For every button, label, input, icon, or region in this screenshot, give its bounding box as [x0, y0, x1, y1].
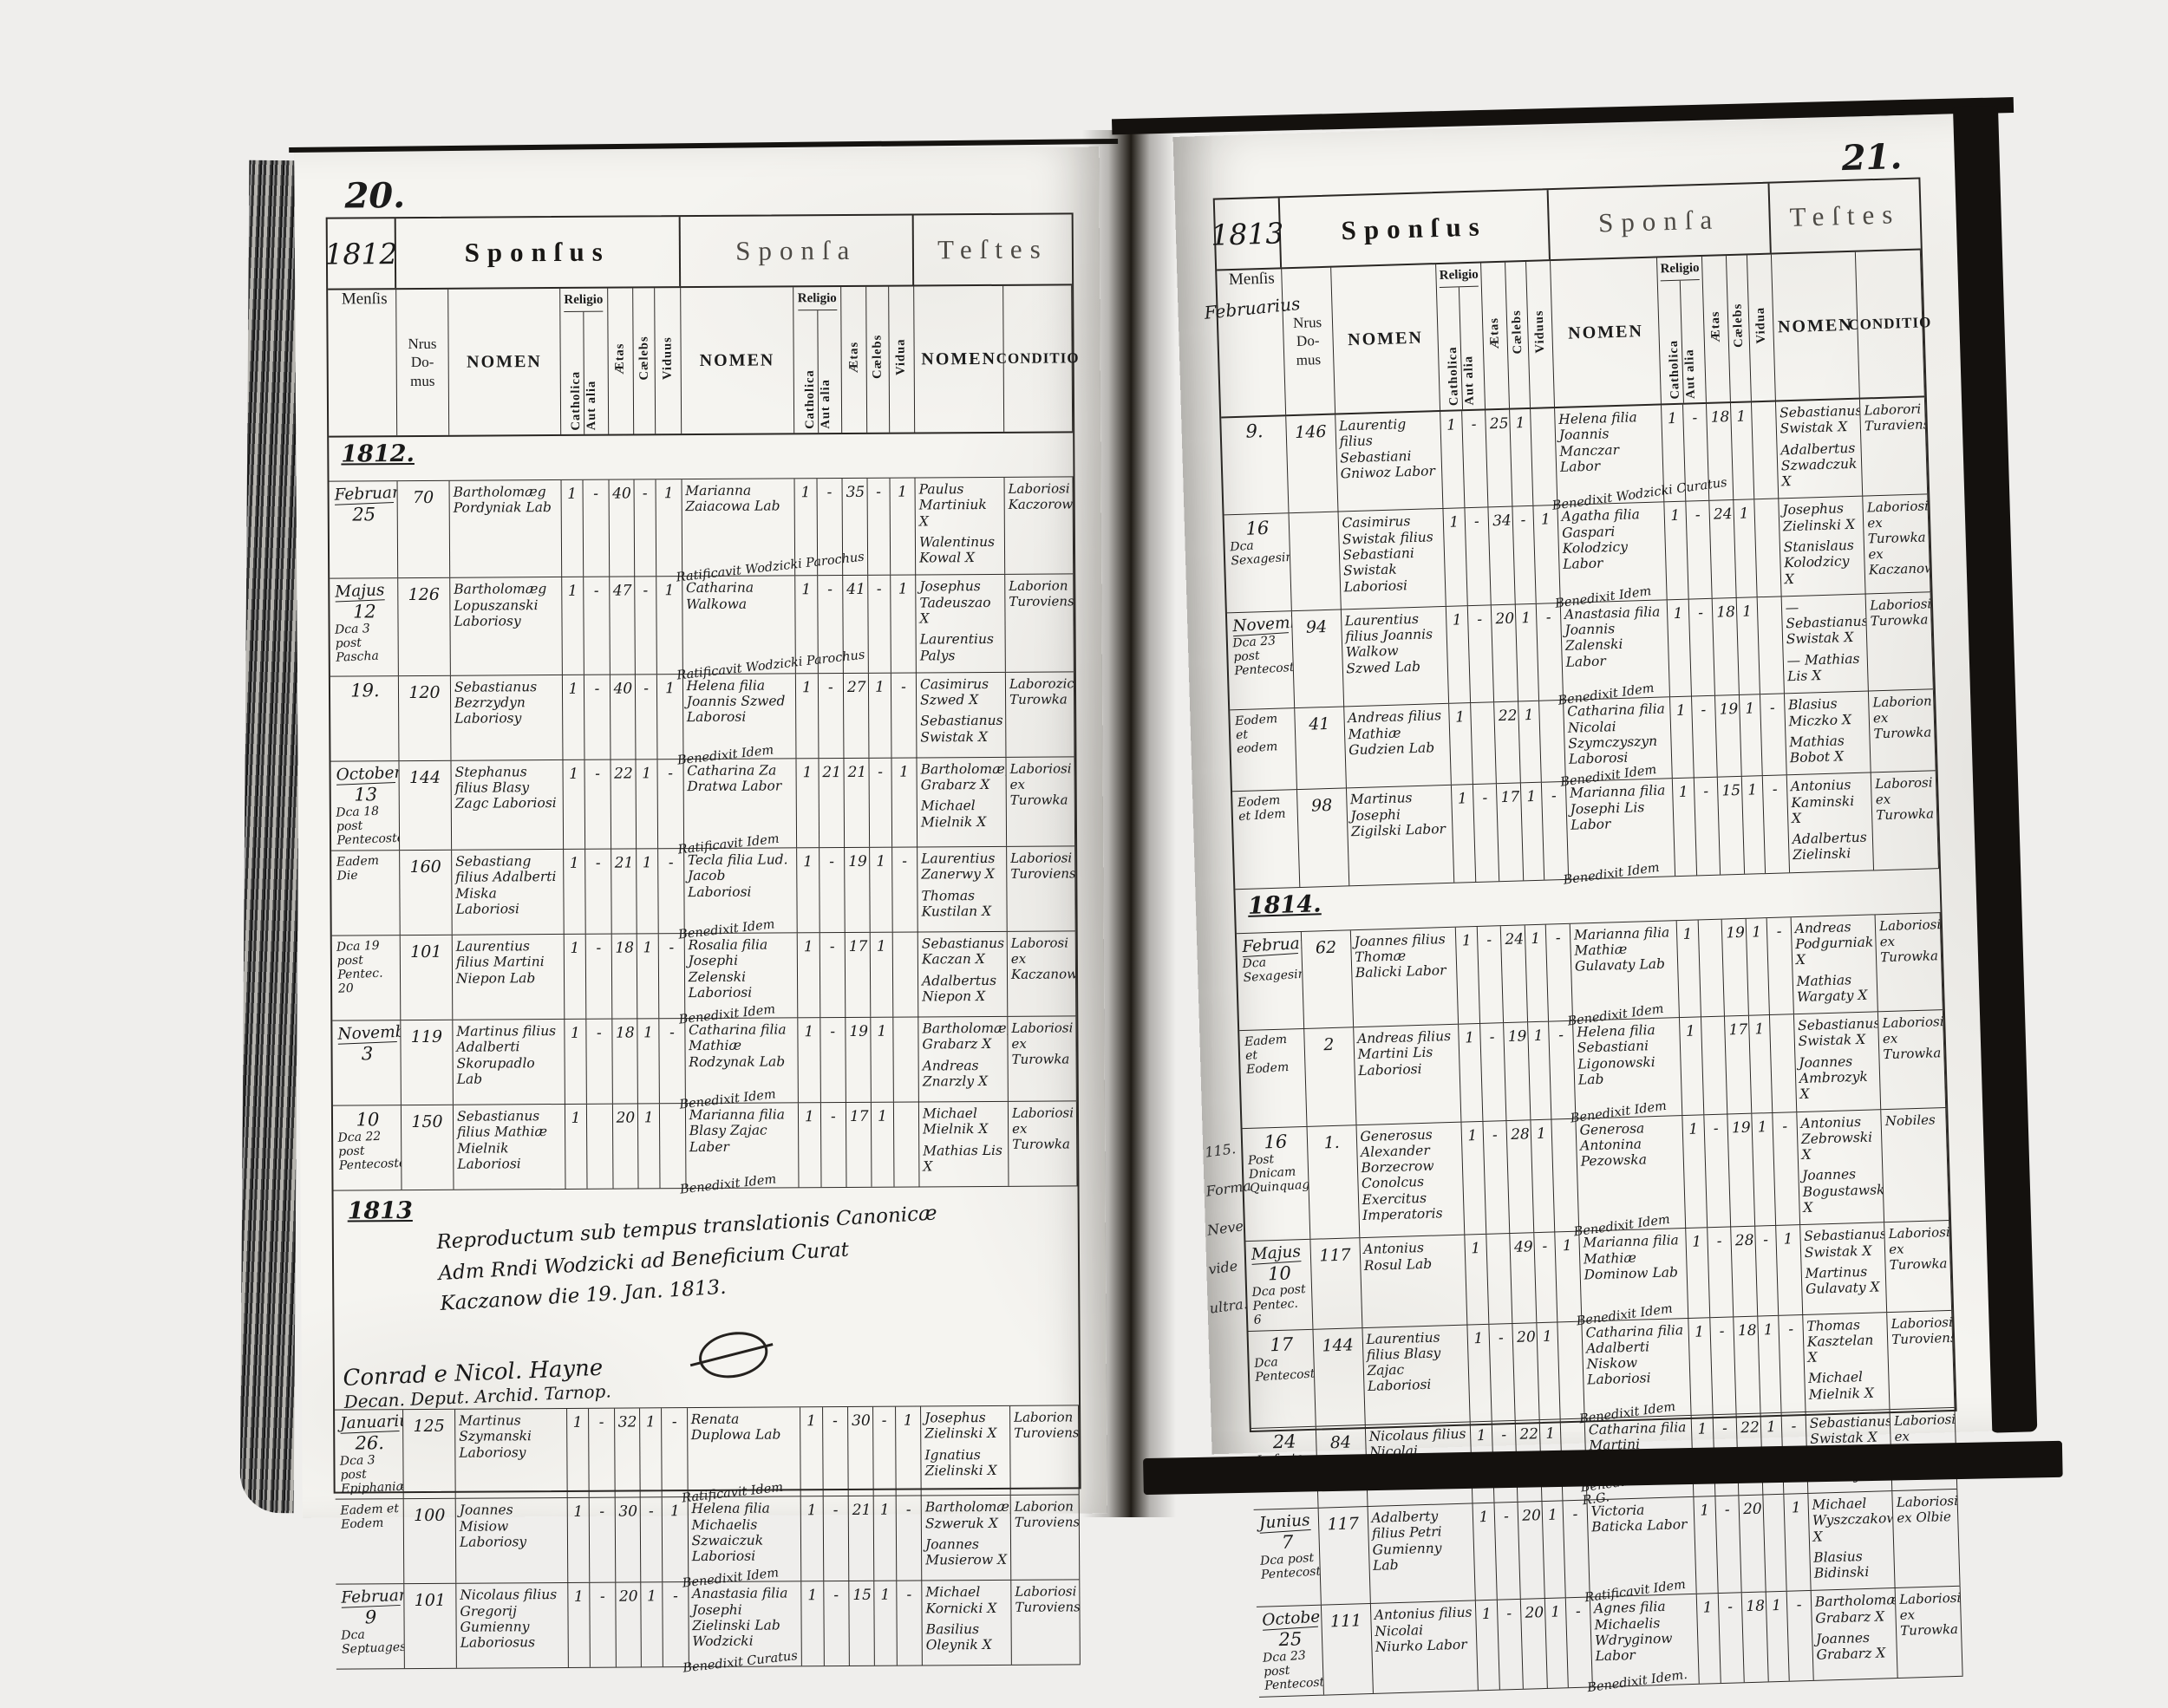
left-page: 20. 1812 Sponſus Sponſa Teſtes Menſis Nr…	[294, 147, 1107, 1518]
cell-sponsa-viduus: -	[897, 1496, 923, 1581]
religio-label: Religio	[1439, 264, 1479, 288]
register-entry-row: Februarius2570Bartholomæg Pordyniak Lab1…	[330, 477, 1074, 579]
date-detail: Eadem Die	[336, 853, 396, 883]
cell-sponsus-name: Laurentig filius Sebastiani Gniwoz Labor	[1335, 412, 1444, 512]
cell-testes: — Sebastianus Swistak X— Mathias Lis X	[1781, 594, 1869, 693]
cell-sponsus-aut-alia	[587, 1105, 613, 1189]
witness-name: Bartholomæg Szweruk X	[925, 1499, 1007, 1531]
cell-mensis: Junius7Dca post Pentecosten	[1254, 1509, 1322, 1607]
cell-sponsus-caelebs: 1	[1516, 604, 1540, 701]
date-detail: Eodem et Idem	[1237, 792, 1295, 824]
cell-mensis: 16Post Dnicam Quinquagesima	[1243, 1126, 1311, 1241]
cell-sponsus-aetas: 20	[1492, 604, 1518, 701]
cell-house-number: 2	[1304, 1027, 1356, 1125]
cell-sponsus-aetas: 30	[615, 1498, 641, 1582]
sponsus-religio-header: Religio Catholica Aut alia	[1436, 264, 1486, 410]
cell-sponsa-viduus: 1	[891, 758, 917, 846]
cell-sponsus-aut-alia: -	[1467, 605, 1494, 702]
witness-name: Michael Kornicki X	[925, 1584, 1007, 1616]
sponsus-viduus-header: Viduus	[656, 288, 682, 434]
date-detail: Dca Sexagesima	[1230, 538, 1287, 569]
register-entry-row: Eadem et Eodem100Joannes Misiow Laborios…	[336, 1496, 1081, 1585]
register-entry-row: November3119Martinus filius Adalberti Sk…	[332, 1016, 1077, 1105]
cell-sponsus-name: Martinus Szymanski Laboriosy	[455, 1409, 567, 1498]
witness-name: Sebastianus Swistak X	[1798, 1016, 1875, 1050]
year-box: 1813	[1215, 198, 1282, 269]
mensis-label: Menſis	[342, 290, 388, 309]
left-page-entries: 1812.Februarius2570Bartholomæg Pordyniak…	[329, 433, 1081, 1670]
cell-sponsus-aut-alia: -	[1473, 785, 1500, 882]
cell-sponsus-aetas: 32	[615, 1409, 641, 1497]
cell-sponsus-aetas: 19	[1504, 1022, 1531, 1119]
month-label: Februarius	[341, 1587, 401, 1608]
cell-sponsus-catholica: 1	[563, 675, 585, 759]
day-label: 7	[1259, 1531, 1315, 1554]
mensis-label: Menſis	[1229, 270, 1275, 290]
cell-testes: Casimirus Szwed XSebastianus Swistak X	[917, 673, 1007, 758]
cell-house-number: 125	[403, 1410, 456, 1499]
cell-sponsus-name: Martinus Josephi Zigilski Labor	[1347, 786, 1455, 885]
cell-testes: Sebastianus Swistak XAdalbertus Szwadczu…	[1776, 400, 1864, 499]
witness-name: Josephus Zielinski X	[924, 1410, 1006, 1442]
date-detail: Dca post Pentec. 6	[1251, 1282, 1309, 1327]
cell-testes: Michael Kornicki XBasilius Oleynik X	[922, 1581, 1012, 1666]
sponsus-caelebs-header: Cælebs	[633, 288, 656, 434]
aut-alia-label: Aut alia	[818, 380, 833, 430]
religio-label: Religio	[1660, 257, 1700, 281]
cell-sponsus-catholica: 1	[1456, 927, 1480, 1024]
witness-name: Andreas Znarzly X	[923, 1058, 1004, 1090]
cell-sponsus-catholica: 1	[1446, 606, 1471, 703]
day-label: 25	[335, 504, 394, 525]
cell-sponsus-viduus	[1558, 1321, 1585, 1418]
cell-mensis: Majus12Dca 3 post Pascha	[330, 579, 399, 676]
religio-label: Religio	[564, 289, 603, 312]
cell-testes: Thomas Kasztelan XMichael Mielnik X	[1803, 1313, 1890, 1411]
cell-conditio: Laborosi ex Kaczanowka	[1008, 931, 1077, 1015]
margin-note: Forma	[1205, 1178, 1247, 1200]
cell-sponsus-catholica: 1	[1468, 1324, 1492, 1421]
witness-name: Josephus Tadeuszao X	[919, 578, 1001, 626]
cell-sponsus-aetas: 20	[612, 1105, 638, 1189]
registrar-note-row: 1813Reproductum sub tempus translationis…	[334, 1186, 1080, 1410]
catholica-column: Catholica	[568, 312, 584, 434]
day-label: 9	[341, 1607, 400, 1628]
cell-sponsus-aetas: 40	[609, 479, 635, 577]
date-detail: Dca Pentecosten	[1254, 1353, 1311, 1384]
cell-sponsus-catholica: 1	[567, 1498, 590, 1582]
cell-conditio: Laboriosi ex Turowka	[1878, 1010, 1946, 1109]
cell-sponsa-viduus: -	[892, 848, 918, 932]
sponsa-caelebs-header: Cælebs	[866, 287, 890, 433]
cell-sponsus-aut-alia: -	[1489, 1323, 1516, 1420]
cell-house-number: 101	[404, 1584, 457, 1668]
cell-sponsus-aut-alia: -	[1477, 926, 1504, 1023]
margin-note: ultra.	[1209, 1295, 1251, 1317]
cell-mensis: FebruariusDca Sexagesima	[1237, 932, 1304, 1031]
cell-mensis: Februarius9Dca Septuagesima	[336, 1584, 405, 1668]
cell-house-number: 144	[1313, 1328, 1365, 1426]
date-detail: Dca 3 post Pascha	[335, 621, 395, 665]
catholica-column: Catholica	[802, 310, 819, 433]
cell-sponsus-viduus: -	[663, 1582, 689, 1666]
cell-sponsus-aetas: 22	[611, 759, 637, 848]
cell-conditio: Laboriosi ex Olbie	[1892, 1490, 1960, 1588]
cell-conditio: Nobiles	[1881, 1108, 1949, 1222]
aut-alia-label: Aut alia	[1462, 355, 1479, 406]
cell-sponsus-catholica: 1	[1444, 509, 1468, 606]
witness-name: Blasius Bidinski	[1813, 1548, 1890, 1581]
catholica-label: Catholica	[569, 371, 584, 431]
cell-sponsus-viduus: -	[1542, 782, 1569, 879]
date-detail: Dca 23 post Pentecosten	[1232, 633, 1290, 678]
cell-sponsus-caelebs: -	[636, 675, 658, 759]
month-label: Januarius	[340, 1412, 400, 1434]
cell-sponsus-aetas: 20	[1521, 1599, 1548, 1688]
cell-sponsus-catholica: 1	[1459, 1024, 1483, 1121]
cell-sponsus-aetas: 18	[611, 935, 637, 1019]
cell-sponsus-name: Laurentius filius Martini Niepon Lab	[453, 935, 565, 1020]
cell-sponsus-name: Andreas filius Martini Lis Laboriosi	[1354, 1025, 1462, 1125]
year-box: 1812	[328, 218, 396, 288]
register-entry-row: 16Post Dnicam Quinquagesima1.Generosus A…	[1243, 1108, 1950, 1242]
cell-conditio: Laboriosi ex Turowka	[1884, 1221, 1952, 1311]
catholica-label: Catholica	[1446, 347, 1462, 407]
aut-alia-column: Aut alia	[1681, 280, 1699, 402]
witness-name: Joannes Grabarz X	[1816, 1629, 1893, 1663]
cell-sponsus-name: Antonius filius Nicolai Niurko Labor	[1370, 1601, 1479, 1693]
cell-sponsus-name: Adalberty filius Petri Gumienny Lab	[1368, 1503, 1476, 1603]
cell-sponsa-viduus: -	[1760, 694, 1786, 776]
cell-sponsus-aetas: 28	[1507, 1120, 1534, 1233]
cell-house-number: 119	[401, 1020, 454, 1105]
cell-sponsus-catholica: 1	[565, 1105, 588, 1189]
witness-name: Bartholomæg Grabarz X	[921, 761, 1002, 793]
cell-sponsus-aut-alia: -	[584, 675, 611, 759]
cell-sponsus-name: Joannes Misiow Laboriosy	[456, 1498, 568, 1583]
left-table-section-band: 1812 Sponſus Sponſa Teſtes	[328, 214, 1072, 290]
cell-sponsus-caelebs: 1	[637, 849, 659, 933]
cell-mensis: November3	[332, 1020, 402, 1105]
cell-sponsus-aut-alia: -	[1465, 508, 1492, 605]
date-detail: Dca 18 post Pentecosten	[336, 804, 396, 848]
cell-testes: Josephus Tadeuszao XLaurentius Palys	[916, 575, 1006, 672]
cell-sponsus-catholica: 1	[565, 1020, 587, 1104]
cell-sponsus-caelebs: 1	[1525, 924, 1550, 1021]
cell-house-number: 146	[1286, 415, 1338, 513]
cell-mensis: Februarius25	[330, 481, 399, 578]
cell-testes: Bartholomæg Szweruk XJoannes Musierow X	[922, 1496, 1012, 1581]
cell-sponsus-viduus: -	[663, 1408, 689, 1496]
cell-conditio: Laborion Turoviensis	[1010, 1405, 1080, 1495]
cell-testes: Paulus Martiniuk XWalentinus Kowal X	[916, 478, 1006, 575]
cell-sponsus-viduus: -	[659, 934, 685, 1018]
month-label: October	[336, 764, 395, 786]
page-number-left: 20.	[344, 175, 405, 216]
cell-sponsus-viduus: -	[658, 759, 684, 848]
cell-sponsus-catholica: 1	[568, 1583, 591, 1667]
signature-block: Conrad e Nicol. HayneDecan. Deput. Archi…	[343, 1351, 717, 1413]
house-number-column-header: Nrus Do- mus	[396, 290, 449, 435]
cell-sponsus-viduus	[1552, 1118, 1579, 1231]
cell-mensis: October13Dca 18 post Pentecosten	[330, 761, 400, 851]
witness-name: Michael Mielnik X	[923, 1105, 1004, 1138]
sponsus-religio-header: Religio Catholica Aut alia	[560, 289, 609, 434]
conditio-header: CONDITIO	[1856, 250, 1925, 397]
conditio-header: CONDITIO	[1003, 285, 1073, 431]
date-detail: Dca post Pentecosten	[1260, 1551, 1317, 1582]
cell-sponsus-viduus	[1531, 408, 1557, 505]
cell-testes: Bartholomæg Grabarz XMichael Mielnik X	[917, 758, 1008, 847]
day-label: 12	[335, 602, 394, 623]
day-label: 16	[1248, 1131, 1303, 1153]
date-detail: Dca 22 post Pentecosten	[337, 1129, 398, 1173]
cell-sponsus-aetas: 49	[1511, 1233, 1538, 1322]
cell-mensis: Eadem et Eodem	[1239, 1029, 1307, 1128]
witness-name: — Sebastianus Swistak X	[1785, 597, 1863, 647]
right-page: 21. 115. Forma Neve vide ultra. 1813 Spo…	[1173, 114, 1993, 1454]
cell-sponsus-caelebs: 1	[638, 1104, 661, 1188]
cell-conditio: Laborion ex Turowka	[1869, 689, 1936, 772]
cell-house-number: 98	[1297, 789, 1349, 887]
register-scan-scene: 20. 1812 Sponſus Sponſa Teſtes Menſis Nr…	[0, 0, 2168, 1622]
witness-name: Laurentius Palys	[920, 631, 1002, 663]
cell-sponsus-name: Casimirus Swistak filius Sebastiani Swis…	[1338, 509, 1446, 609]
cell-sponsus-caelebs: 1	[1510, 409, 1534, 506]
cell-sponsus-viduus: 1	[663, 1497, 689, 1581]
cell-sponsus-aut-alia: -	[1483, 1121, 1510, 1234]
testes-nomen-header: NOMEN	[914, 286, 1004, 433]
cell-sponsus-aut-alia: -	[587, 1020, 613, 1104]
cell-mensis: Dca 19 post Pentec. 20	[332, 935, 402, 1020]
house-number-column-header: Nrus Do- mus	[1282, 268, 1335, 415]
cell-sponsus-aut-alia: -	[591, 1583, 617, 1667]
cell-mensis: Majus10Dca post Pentec. 6	[1245, 1240, 1313, 1330]
cell-testes: Antonius Kaminski XAdalbertus Zielinski	[1787, 773, 1875, 872]
left-register-table: 1812 Sponſus Sponſa Teſtes Menſis Nrus D…	[326, 212, 1081, 1493]
day-label: 10	[1251, 1262, 1307, 1285]
sponsa-religio-header: Religio Catholica Aut alia	[1657, 257, 1707, 403]
cell-testes: Blasius Miczko XMathias Bobot X	[1785, 692, 1871, 775]
cell-sponsus-viduus: 1	[1534, 505, 1561, 603]
cell-sponsus-viduus: -	[659, 849, 685, 933]
cell-sponsus-name: Sebastiang filius Adalberti Miska Labori…	[452, 850, 564, 935]
cell-conditio: Laboriosi ex Turowka	[1009, 1101, 1078, 1185]
cell-sponsus-viduus: -	[660, 1019, 686, 1103]
cell-sponsus-caelebs: 1	[1537, 1322, 1561, 1419]
aut-alia-column: Aut alia	[818, 310, 833, 433]
page-number-right: 21.	[1841, 136, 1903, 179]
cell-testes: Sebastianus Swistak XJoannes Ambrozyk X	[1794, 1012, 1882, 1111]
day-label: 16	[1230, 518, 1285, 540]
cell-testes: Michael Mielnik XMathias Lis X	[919, 1102, 1009, 1187]
cell-sponsa-viduus: 1	[896, 1407, 922, 1496]
right-page-wrap: 21. 115. Forma Neve vide ultra. 1813 Spo…	[1172, 95, 2053, 1497]
cell-house-number: 1.	[1307, 1125, 1360, 1239]
testes-nomen-header: NOMEN	[1772, 252, 1860, 401]
cell-sponsus-viduus: -	[1537, 603, 1564, 701]
cell-sponsus-caelebs: 1	[1545, 1599, 1569, 1688]
witness-name: Antonius Kaminski X	[1791, 777, 1869, 826]
cell-mensis: Eodem et eodem	[1230, 708, 1296, 791]
cell-conditio: Laboriosi Turoviensis	[1007, 846, 1076, 930]
cell-testes: Antonius Zebrowski XJoannes Bogustawski …	[1797, 1110, 1884, 1225]
cell-sponsus-name: Laurentius filius Blasy Zajac Laboriosi	[1362, 1325, 1471, 1424]
cell-sponsus-caelebs: 1	[1528, 1022, 1552, 1119]
sponsa-nomen-header: NOMEN	[1551, 258, 1662, 407]
cell-sponsus-aut-alia	[1471, 702, 1497, 784]
cell-mensis: NovemberDca 23 post Pentecosten	[1227, 611, 1295, 710]
witness-name: Adalbertus Niepon X	[922, 973, 1003, 1005]
cell-sponsus-viduus: -	[1546, 924, 1573, 1021]
cell-conditio: Laborion Turoviensis	[1011, 1496, 1081, 1580]
cell-mensis: Januarius26.Dca 3 post Epiphaniæ	[335, 1410, 404, 1499]
cell-sponsus-catholica: 1	[567, 1409, 590, 1497]
cell-house-number: 41	[1295, 707, 1347, 790]
witness-name: Casimirus Szwed X	[920, 676, 1002, 708]
register-entry-row: Eadem Die160Sebastiang filius Adalberti …	[331, 846, 1076, 935]
cell-testes: Sebastianus Swistak XMartinus Gulavaty X	[1800, 1222, 1887, 1314]
cell-testes: Bartholomæg Grabarz XJoannes Grabarz X	[1811, 1588, 1897, 1679]
cell-sponsus-caelebs: 1	[637, 934, 659, 1018]
cell-sponsus-name: Generosus Alexander Borzecrow Conolcus E…	[1356, 1122, 1466, 1237]
witness-name: Sebastianus Kaczan X	[922, 935, 1003, 968]
cell-house-number: 62	[1302, 930, 1354, 1028]
aut-alia-label: Aut alia	[1682, 349, 1699, 400]
cell-sponsus-name: Bartholomæg Pordyniak Lab	[449, 480, 561, 577]
cell-house-number	[1289, 512, 1341, 610]
date-detail: Dca 23 post Pentecosten	[1263, 1648, 1321, 1693]
right-table-column-headers: Menſis Februarius Nrus Do- mus NOMEN Rel…	[1217, 250, 1925, 418]
cell-sponsa-viduus	[893, 933, 919, 1017]
cell-conditio: Laborion Turoviensis	[1005, 575, 1074, 672]
cell-sponsus-aetas: 25	[1486, 410, 1512, 507]
witness-name: Adalbertus Zielinski	[1792, 830, 1869, 864]
month-label: Junius	[1258, 1511, 1310, 1534]
cell-sponsus-aetas: 17	[1497, 784, 1524, 881]
cell-sponsus-viduus: 1	[657, 577, 683, 675]
cell-sponsus-caelebs: -	[635, 577, 657, 675]
cell-sponsus-aut-alia: -	[1480, 1023, 1507, 1120]
cell-sponsus-viduus	[660, 1104, 686, 1188]
catholica-label: Catholica	[1667, 340, 1683, 400]
cell-sponsus-aetas: 18	[612, 1020, 638, 1104]
cell-sponsa-viduus: -	[897, 1581, 923, 1666]
testes-section-label: Teſtes	[914, 214, 1072, 284]
margin-note: vide	[1207, 1256, 1249, 1278]
cell-sponsus-viduus: -	[1549, 1021, 1576, 1118]
sponsus-aetas-header: Ætas	[608, 288, 634, 434]
cell-sponsus-aut-alia	[1486, 1234, 1513, 1323]
cell-sponsus-caelebs: -	[1534, 1233, 1557, 1322]
date-detail: Dca Sexagesima	[1242, 954, 1299, 985]
day-label: 10	[338, 1109, 397, 1130]
cell-sponsus-catholica: 1	[564, 935, 586, 1019]
cell-sponsus-aut-alia: -	[590, 1498, 616, 1582]
aut-alia-label: Aut alia	[584, 381, 599, 431]
cell-sponsus-aetas: 20	[616, 1583, 642, 1667]
cell-sponsus-caelebs: 1	[640, 1408, 663, 1496]
cell-mensis: October25Dca 23 post Pentecosten	[1257, 1606, 1324, 1696]
cell-sponsus-name: Laurentius filius Joannis Walkow Szwed L…	[1341, 607, 1449, 707]
cell-sponsus-aetas: 34	[1489, 507, 1516, 604]
witness-name: Joannes Ambrozyk X	[1799, 1053, 1877, 1102]
date-detail: Dca 3 post Epiphaniæ	[340, 1452, 401, 1496]
cell-house-number: 94	[1292, 610, 1344, 707]
mensis-column-header: Menſis Februarius	[1217, 269, 1286, 416]
cell-sponsus-caelebs: 1	[637, 1019, 660, 1103]
mensis-column-header: Menſis	[328, 290, 397, 435]
month-label: Majus	[335, 582, 385, 603]
cell-sponsus-name: Sebastianus Bezrzydyn Laboriosy	[451, 675, 563, 760]
cell-sponsus-catholica: 1	[1449, 703, 1473, 785]
witness-name: Joannes Musierow X	[925, 1536, 1007, 1568]
month-label: Majus	[1251, 1242, 1301, 1265]
aut-alia-column: Aut alia	[1459, 287, 1478, 409]
cell-sponsus-aut-alia: -	[1498, 1600, 1525, 1689]
cell-sponsus-catholica: 1	[1473, 1503, 1498, 1600]
date-detail: Post Dnicam Quinquagesima	[1248, 1151, 1306, 1196]
cell-mensis: 10Dca 22 post Pentecosten	[333, 1105, 402, 1190]
cell-sponsus-viduus: -	[1564, 1501, 1590, 1598]
cell-sponsus-aut-alia: -	[586, 850, 612, 934]
sponsus-section-label: Sponſus	[396, 217, 681, 288]
sponsa-religio-header: Religio Catholica Aut alia	[793, 287, 842, 433]
cell-house-number: 117	[1310, 1238, 1362, 1328]
religio-label: Religio	[798, 287, 837, 310]
book-page-edges-left	[240, 160, 304, 1513]
witness-name: Ignatius Zielinski X	[924, 1447, 1006, 1479]
sponsa-section-label: Sponſa	[680, 215, 914, 286]
cell-conditio: Laboriosi ex Turowka	[1008, 1016, 1077, 1100]
cell-sponsus-aetas: 20	[1513, 1323, 1540, 1420]
cell-conditio: Laboriosi Kaczorowca	[1004, 477, 1074, 574]
register-entry-row: Dca 19 post Pentec. 20101Laurentius fili…	[332, 931, 1077, 1020]
witness-name: Adalbertus Szwadczuk X	[1780, 440, 1858, 489]
cell-sponsus-name: Bartholomæg Lopuszanski Laboriosy	[450, 577, 562, 675]
witness-name: Michael Wyszczakowski X	[1812, 1495, 1890, 1544]
cell-sponsus-viduus	[1539, 701, 1565, 782]
margin-note: Neve	[1206, 1217, 1248, 1239]
cell-house-number: 120	[399, 676, 452, 760]
cell-sponsus-catholica: 1	[1440, 411, 1465, 508]
cell-mensis: 19.	[330, 676, 400, 760]
cell-sponsus-aut-alia: -	[584, 480, 610, 577]
cell-sponsus-name: Joannes filius Thomæ Balicki Labor	[1350, 927, 1459, 1027]
year-label: 1812.	[341, 436, 1073, 467]
witness-name: Basilius Oleynik X	[926, 1621, 1008, 1653]
date-detail: Dca 19 post Pentec. 20	[336, 938, 398, 996]
cell-testes: Michael Wyszczakowski XBlasius Bidinski	[1808, 1491, 1896, 1590]
cell-sponsus-caelebs: 1	[1542, 1501, 1566, 1598]
cell-sponsus-name: Sebastianus filius Mathiæ Mielnik Labori…	[454, 1105, 565, 1190]
cell-sponsus-catholica: 1	[564, 850, 586, 934]
cell-testes: Sebastianus Kaczan XAdalbertus Niepon X	[918, 932, 1009, 1017]
cell-house-number: 70	[397, 481, 450, 578]
sponsus-nomen-header: NOMEN	[1331, 264, 1441, 414]
left-table-column-headers: Menſis Nrus Do- mus NOMEN Religio Cathol…	[328, 285, 1073, 437]
cell-sponsus-aut-alia: -	[586, 935, 612, 1019]
date-detail: Eadem et Eodem	[340, 1502, 400, 1532]
witness-name: Mathias Wargaty X	[1796, 971, 1873, 1005]
cell-sponsus-catholica: 1	[1452, 785, 1476, 882]
witness-name: Michael Mielnik X	[1808, 1369, 1885, 1403]
cell-sponsus-name: Antonius Rosul Lab	[1360, 1235, 1468, 1327]
witness-name: Josephus Zielinski X	[1782, 500, 1859, 534]
cell-conditio: Laboriosi ex Turowka	[1876, 913, 1943, 1012]
month-label: November	[337, 1023, 397, 1045]
witness-name: Mathias Lis X	[923, 1143, 1004, 1175]
